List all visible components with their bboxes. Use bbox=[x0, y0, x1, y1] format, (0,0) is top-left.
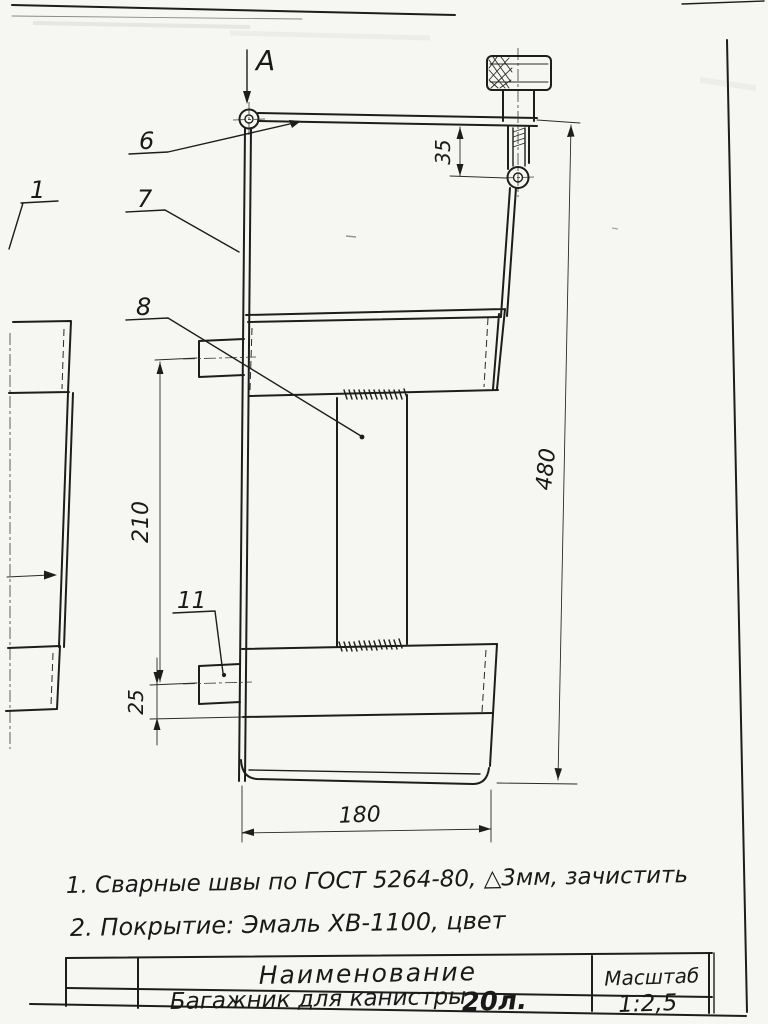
weld-ticks-bottom bbox=[339, 639, 402, 651]
dim35-extension-line bbox=[450, 176, 506, 178]
title-name-value: Багажник для канистры bbox=[170, 984, 467, 1015]
knob-shank-lines bbox=[503, 90, 534, 121]
lower-tab-outline bbox=[199, 664, 240, 704]
scan-speck-1 bbox=[346, 236, 356, 237]
knob-assembly bbox=[487, 48, 551, 197]
view-a-arrowhead bbox=[243, 91, 251, 104]
view-a-label: A bbox=[254, 44, 275, 77]
dim480-bottom-extension bbox=[497, 783, 577, 784]
left-bar-lines bbox=[239, 128, 251, 781]
dim25-extension-lines bbox=[150, 683, 243, 719]
scan-smudge-top bbox=[33, 23, 250, 27]
part-label-1: 1 bbox=[9, 176, 58, 249]
part-labels: 1 6 7 8 11 bbox=[9, 120, 364, 677]
part-label-6: 6 bbox=[129, 120, 301, 155]
top-border-line bbox=[12, 5, 455, 15]
dimension-25: 25 bbox=[124, 658, 243, 745]
title-scale-value: 1:2,5 bbox=[618, 990, 678, 1018]
drawing-sheet: A bbox=[0, 0, 768, 1024]
right-border-line bbox=[727, 40, 747, 1012]
knob-knurled-head bbox=[487, 56, 551, 90]
top-rail-extension-line bbox=[537, 120, 580, 123]
lower-box-hidden-edge bbox=[482, 650, 486, 712]
dimensions: 35 480 210 25 180 bbox=[124, 125, 577, 842]
dim180-text: 180 bbox=[338, 802, 381, 828]
dimension-180: 180 bbox=[242, 786, 491, 842]
note-line-1: 1. Сварные швы по ГОСТ 5264-80, △3мм, за… bbox=[66, 862, 689, 899]
side-view-upper-bracket-outline bbox=[9, 321, 71, 393]
dim480-text: 480 bbox=[532, 447, 561, 491]
lower-box-top-edge bbox=[242, 644, 497, 649]
top-rail-lines bbox=[258, 113, 537, 126]
lower-tab bbox=[183, 664, 252, 704]
part11-text: 11 bbox=[177, 588, 206, 614]
strap-edges bbox=[337, 395, 407, 647]
part7-underline-leader bbox=[126, 210, 239, 252]
note-line-2: 2. Покрытие: Эмаль ХВ-1100, цвет bbox=[70, 906, 507, 942]
knob-bracket-lines bbox=[508, 127, 529, 169]
part6-leader-arrowhead bbox=[289, 120, 301, 128]
right-bar-lines bbox=[501, 188, 516, 316]
side-view-pointer-line bbox=[7, 575, 50, 577]
lower-box-mid-line bbox=[243, 713, 493, 717]
lower-box-bottom-inner-line bbox=[249, 770, 480, 774]
dim35-text: 35 bbox=[431, 139, 455, 164]
scan-smudge-top-right bbox=[700, 80, 756, 88]
title-block-top-line bbox=[66, 953, 712, 958]
part11-leader-dot bbox=[222, 673, 226, 677]
part6-text: 6 bbox=[139, 127, 154, 155]
pivot-centerlines bbox=[233, 102, 265, 138]
top-right-border-line bbox=[682, 1, 764, 4]
upper-box-hidden-edges bbox=[250, 318, 488, 390]
top-border-smudge-line bbox=[12, 16, 302, 19]
side-view-lower-hidden-edge bbox=[51, 653, 53, 705]
part-label-11: 11 bbox=[173, 588, 226, 677]
side-view-pointer-arrowhead bbox=[44, 571, 57, 580]
side-view-upper-hidden-edge bbox=[62, 329, 64, 389]
part11-underline-leader bbox=[173, 611, 223, 673]
lower-box-right-edge bbox=[490, 644, 497, 766]
knob-knurl-hatch bbox=[489, 57, 512, 88]
part8-text: 8 bbox=[136, 293, 151, 321]
upper-box bbox=[246, 309, 505, 396]
knob-thread-hatch bbox=[513, 128, 525, 147]
part1-text: 1 bbox=[30, 176, 45, 204]
part1-underline-leader bbox=[9, 201, 58, 249]
title-scale-header: Масштаб bbox=[604, 963, 700, 990]
part7-text: 7 bbox=[137, 185, 153, 213]
dimension-35: 35 bbox=[431, 127, 506, 178]
notes: 1. Сварные швы по ГОСТ 5264-80, △3мм, за… bbox=[66, 862, 689, 942]
part8-leader-dot bbox=[360, 435, 365, 440]
main-view: A bbox=[183, 44, 580, 784]
dim180-line bbox=[242, 829, 491, 833]
part-label-7: 7 bbox=[126, 185, 239, 252]
scan-speck-2 bbox=[612, 228, 618, 229]
view-direction-a: A bbox=[243, 44, 275, 104]
scan-smudge-top-mid bbox=[230, 33, 430, 38]
side-view-partial bbox=[6, 321, 73, 749]
lower-box bbox=[241, 644, 497, 784]
dimension-210: 210 bbox=[129, 358, 197, 682]
top-left-pivot bbox=[233, 102, 265, 138]
upper-box-outline bbox=[246, 309, 505, 396]
title-block: Наименование Багажник для канистры 20л. … bbox=[66, 953, 714, 1018]
title-name-volume: 20л. bbox=[461, 986, 527, 1018]
dim25-text: 25 bbox=[124, 689, 148, 714]
side-view-bar-edges bbox=[59, 393, 73, 647]
dimension-480: 480 bbox=[497, 125, 577, 784]
dim210-text: 210 bbox=[129, 501, 154, 543]
